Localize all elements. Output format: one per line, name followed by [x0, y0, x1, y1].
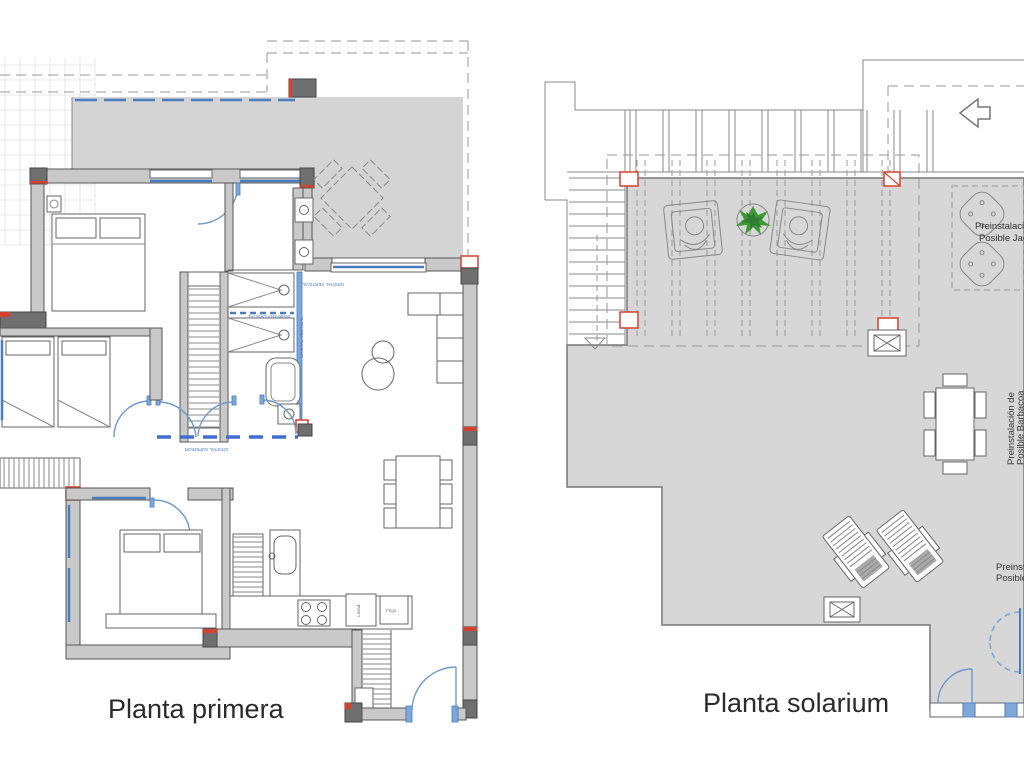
- single-bed: [2, 337, 54, 427]
- sofa: [408, 293, 463, 383]
- planta-primera-plan: Lavad. Frigo: [0, 41, 478, 724]
- double-bed: [52, 214, 145, 311]
- solarium-stairs: [569, 110, 625, 349]
- roof-block: [289, 79, 316, 97]
- drain-box: [868, 330, 906, 356]
- right-plan-title: Planta solarium: [703, 688, 889, 718]
- shower-tray: [228, 273, 294, 307]
- bedroom1-right-wall: [225, 183, 233, 271]
- appliance-label: Lavad.: [356, 603, 361, 617]
- floorplan-drawing: Lavad. Frigo: [0, 0, 1024, 768]
- double-bed: [106, 530, 216, 628]
- single-bed: [58, 337, 110, 427]
- terrace-bottom-wall: [305, 256, 478, 284]
- left-exterior-wall: [0, 184, 46, 332]
- washbasin: [295, 198, 313, 222]
- washbasin: [295, 240, 313, 264]
- fridge-label: Frigo: [386, 608, 397, 613]
- window-label: CRISTAL VERTICAL: [302, 282, 344, 287]
- appliance-box: [346, 594, 376, 626]
- nightstand: [47, 196, 61, 212]
- drain-box: [824, 597, 860, 622]
- floorplan-sheet: Lavad. Frigo: [0, 0, 1024, 768]
- left-plan-title: Planta primera: [108, 694, 285, 724]
- right-exterior-wall: [463, 284, 477, 718]
- entry-door-arc: [412, 667, 456, 711]
- bedroom-2: [0, 328, 162, 488]
- window-label: CRISTAL SUPERIOR: [184, 447, 228, 452]
- corner-annotation-1: Preinstalación: [996, 562, 1024, 573]
- dining-table-set: [384, 456, 452, 528]
- direction-arrow-icon: [960, 99, 990, 127]
- bathroom-top: [228, 188, 313, 270]
- jacuzzi-label-2: Posible Jacuzzi: [979, 233, 1024, 244]
- side-table: [362, 358, 394, 390]
- closet-hatched: [0, 458, 80, 488]
- side-annotation-2: Posible Barbacoa: [1016, 390, 1024, 465]
- stove: [298, 600, 330, 626]
- jacuzzi-label-1: Preinstalación: [975, 221, 1024, 232]
- bedroom-1: [47, 183, 240, 311]
- living-room: [362, 293, 463, 528]
- kitchen-sink: [274, 536, 296, 574]
- side-table: [372, 341, 394, 363]
- window-label: MAMPARA CRISTAL: [247, 314, 290, 319]
- window-label: CRISTAL VERTICAL: [299, 316, 304, 358]
- planta-solarium-plan: Preinstalación Posible Jacuzzi: [545, 60, 1024, 718]
- shower-tray: [228, 318, 294, 352]
- corner-annotation-2: Posible: [996, 573, 1024, 584]
- entry-stairs: [345, 630, 466, 722]
